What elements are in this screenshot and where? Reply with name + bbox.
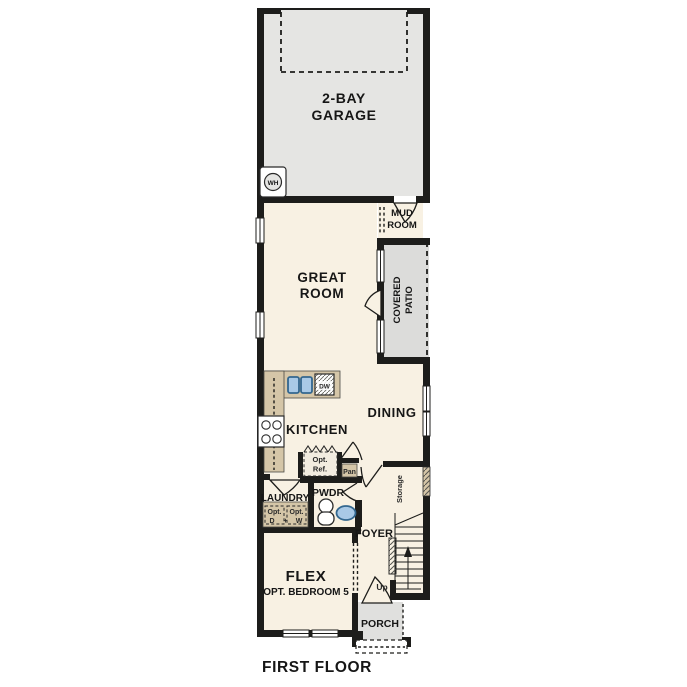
opt-fridge-label-line1: Opt. [313,455,328,464]
kitchen-sink-basin-right [301,377,312,393]
mud-room-bottom-wall [377,238,430,245]
floor-plan-page: WH 2-BAY GARAGE M [0,0,687,687]
mud-room-label-line1: MUD [391,208,413,219]
powder-sink [337,506,356,520]
flex-window-right [312,630,338,637]
great-room-label-line1: GREAT [297,270,346,285]
patio-label-line2: PATIO [404,286,415,314]
great-room-window-upper [256,218,264,243]
opt-fridge-label-line2: Ref. [313,465,327,474]
great-room-window-lower [256,312,264,338]
foyer-label: FOYER [355,528,393,540]
garage-door-lintel [281,8,407,10]
laundry-plus: + [283,516,288,525]
garage-label-line2: GARAGE [311,107,376,123]
patio-window-lower [377,320,384,353]
storage-label: Storage [395,475,404,503]
garage-house-divider-right [416,196,430,203]
flex-label-line2: OPT. BEDROOM 5 [263,587,349,598]
laundry-label: LAUNDRY [261,493,310,504]
dining-window-upper [423,386,430,411]
stove [258,416,284,447]
dining-window-lower [423,412,430,436]
pantry-top-bar [340,458,359,463]
flex-label-line1: FLEX [286,568,327,585]
opt-dryer-line2: D [269,518,274,525]
storage-hatch-lines [423,467,430,496]
opt-washer-line2: W [296,518,303,525]
opt-washer-line1: Opt. [290,509,304,516]
garage-top-wall-left [257,8,281,14]
ref-nook-left-stub [298,452,303,478]
flex-right-wall-bottom-stub [352,593,358,602]
dining-label: DINING [367,405,416,420]
house-bottom-right-wall [390,593,430,600]
opt-dryer-line1: Opt. [268,509,282,516]
great-room-area: GREAT ROOM [297,270,346,301]
mud-room-label-line2: ROOM [387,220,417,231]
patio-bottom-wall [377,357,430,364]
pantry-label: Pan [343,469,356,476]
great-room-label-line2: ROOM [300,286,344,301]
flex-floor [264,600,352,630]
floor-plan-svg: WH 2-BAY GARAGE M [0,0,687,687]
flex-top-wall [257,527,361,533]
flex-window-left [283,630,309,637]
garage-label-line1: 2-BAY [322,90,366,106]
patio-label-line1: COVERED [392,276,403,323]
plan-title: FIRST FLOOR [262,659,372,676]
kitchen-sink-basin-left [288,377,299,393]
patio-window-upper [377,250,384,282]
laundry-top-wall-stub [257,474,270,480]
dishwasher: DW [315,374,334,395]
powder-label: PWDR [312,487,344,499]
garage-top-wall-right [407,8,430,14]
porch-label: PORCH [361,618,399,630]
dishwasher-label: DW [319,384,331,391]
kitchen-label: KITCHEN [286,422,348,437]
garage-right-wall [423,8,430,202]
storage-top-wall [383,461,430,467]
up-label: Up [376,582,387,592]
stair-railing [389,538,396,574]
water-heater-label: WH [268,180,279,187]
